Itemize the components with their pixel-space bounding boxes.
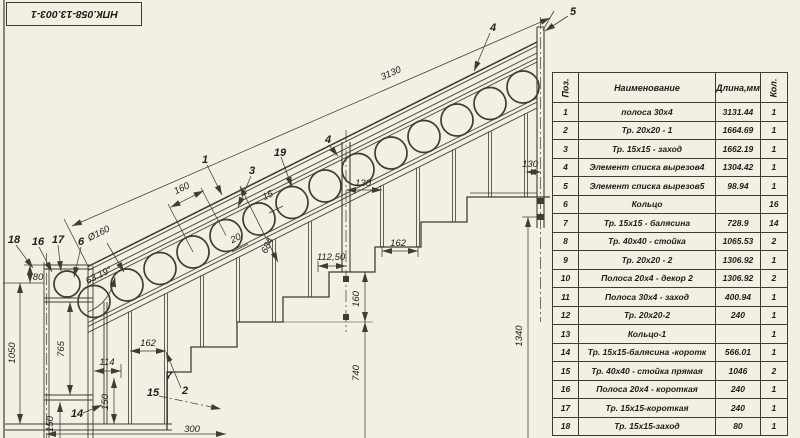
spec-cell-name: Тр. 40х40 - стойка прямая [579, 362, 716, 381]
landing-ring [54, 271, 80, 297]
spec-cell-length: 1306.92 [716, 251, 761, 270]
dim-162-left: 162 [140, 338, 157, 349]
spec-cell-length: 240 [716, 380, 761, 399]
dim-ring-pitch: 160 [172, 180, 192, 197]
callout-14: 14 [71, 408, 83, 420]
spec-row: 12Тр. 20х20-22401 [553, 306, 788, 325]
spec-cell-qty: 2 [760, 362, 787, 381]
spec-cell-qty: 1 [760, 103, 787, 122]
spec-cell-length: 80 [716, 417, 761, 436]
spec-cell-pos: 15 [553, 362, 579, 381]
spec-cell-length: 1664.69 [716, 121, 761, 140]
spec-cell-pos: 12 [553, 306, 579, 325]
spec-cell-pos: 3 [553, 140, 579, 159]
spec-cell-qty: 1 [760, 306, 787, 325]
spec-cell-qty: 1 [760, 177, 787, 196]
balusters [129, 114, 528, 425]
spec-row: 18Тр. 15х15-заход801 [553, 417, 788, 436]
spec-cell-pos: 14 [553, 343, 579, 362]
spec-cell-name: Кольцо [579, 195, 716, 214]
spec-cell-qty: 2 [760, 232, 787, 251]
dim-130-top: 130 [522, 159, 539, 170]
spec-cell-length: 1046 [716, 362, 761, 381]
dim-765: 765 [56, 340, 67, 357]
spec-cell-pos: 16 [553, 380, 579, 399]
spec-cell-name: Элемент списка вырезов5 [579, 177, 716, 196]
dim-740: 740 [351, 364, 362, 381]
spec-cell-pos: 5 [553, 177, 579, 196]
callout-18: 18 [8, 234, 21, 246]
callout-7: 7 [166, 370, 173, 382]
spec-cell-name: Полоса 20х4 - короткая [579, 380, 716, 399]
spec-cell-pos: 13 [553, 325, 579, 344]
dim-slope-length: 3130 [379, 64, 403, 83]
dim-150-b: 150 [45, 415, 56, 432]
spec-cell-length: 1304.42 [716, 158, 761, 177]
dim-130-mid: 130 [355, 178, 372, 189]
spec-cell-pos: 9 [553, 251, 579, 270]
spec-cell-name: Кольцо-1 [579, 325, 716, 344]
spec-cell-name: Тр. 40х40 - стойка [579, 232, 716, 251]
spec-cell-name: Тр. 20х20 - 2 [579, 251, 716, 270]
spec-cell-pos: 11 [553, 288, 579, 307]
spec-cell-pos: 10 [553, 269, 579, 288]
spec-cell-name: Тр. 20х20-2 [579, 306, 716, 325]
spec-cell-name: полоса 30х4 [579, 103, 716, 122]
spec-row: 1полоса 30х43131.441 [553, 103, 788, 122]
spec-row: 17Тр. 15х15-короткая2401 [553, 399, 788, 418]
spec-row: 6Кольцо16 [553, 195, 788, 214]
spec-cell-qty: 14 [760, 214, 787, 233]
spec-cell-name: Тр. 15х15 - заход [579, 140, 716, 159]
dim-1050: 1050 [7, 342, 18, 364]
handrail-strip [88, 42, 537, 267]
dim-114: 114 [99, 357, 114, 368]
spec-row: 8Тр. 40х40 - стойка1065.532 [553, 232, 788, 251]
spec-cell-length: 1306.92 [716, 269, 761, 288]
spec-row: 10Полоса 20х4 - декор 21306.922 [553, 269, 788, 288]
dim-160-vert: 160 [351, 290, 362, 307]
spec-cell-pos: 17 [553, 399, 579, 418]
spec-cell-qty: 1 [760, 380, 787, 399]
spec-row: 5Элемент списка вырезов598.941 [553, 177, 788, 196]
spec-cell-pos: 2 [553, 121, 579, 140]
spec-row: 9Тр. 20х20 - 21306.921 [553, 251, 788, 270]
spec-cell-length: 400.94 [716, 288, 761, 307]
spec-cell-length: 3131.44 [716, 103, 761, 122]
spec-cell-length: 566.01 [716, 343, 761, 362]
spec-cell-qty: 1 [760, 288, 787, 307]
spec-cell-name: Тр. 15х15 - балясина [579, 214, 716, 233]
spec-row: 2Тр. 20х20 - 11664.691 [553, 121, 788, 140]
spec-cell-qty: 1 [760, 399, 787, 418]
spec-cell-pos: 1 [553, 103, 579, 122]
spec-cell-qty: 1 [760, 343, 787, 362]
dim-80: 80 [33, 272, 44, 283]
spec-cell-name: Тр. 15х15-балясина -коротк [579, 343, 716, 362]
railing-slope [88, 42, 537, 333]
dim-angle: 63.19° [84, 265, 114, 287]
spec-cell-pos: 7 [553, 214, 579, 233]
callout-4-top: 4 [489, 22, 496, 34]
spec-cell-pos: 18 [553, 417, 579, 436]
spec-cell-pos: 6 [553, 195, 579, 214]
spec-table: Поз. Наименование Длина,мм Кол. 1полоса … [552, 72, 788, 436]
spec-cell-length: 728.9 [716, 214, 761, 233]
spec-header-length: Длина,мм [716, 73, 761, 103]
spec-row: 14Тр. 15х15-балясина -коротк566.011 [553, 343, 788, 362]
callout-5: 5 [570, 6, 577, 18]
dim-162-right: 162 [390, 238, 407, 249]
dim-112-50: 112,50 [317, 252, 346, 263]
spec-cell-length: 1662.19 [716, 140, 761, 159]
spec-cell-length [716, 195, 761, 214]
callout-1: 1 [202, 154, 208, 166]
callout-4-mid: 4 [324, 134, 331, 146]
spec-cell-length [716, 325, 761, 344]
callout-6: 6 [78, 236, 85, 248]
spec-cell-length: 240 [716, 306, 761, 325]
spec-cell-length: 240 [716, 399, 761, 418]
spec-cell-qty: 1 [760, 251, 787, 270]
spec-cell-qty: 1 [760, 121, 787, 140]
spec-cell-pos: 8 [553, 232, 579, 251]
callout-2: 2 [181, 385, 188, 397]
callout-16: 16 [32, 236, 45, 248]
spec-cell-qty: 1 [760, 140, 787, 159]
spec-row: 4Элемент списка вырезов41304.421 [553, 158, 788, 177]
spec-row: 3Тр. 15х15 - заход1662.191 [553, 140, 788, 159]
dim-ring-diameter: Ø160 [85, 223, 112, 244]
spec-cell-length: 98.94 [716, 177, 761, 196]
spec-cell-qty: 2 [760, 269, 787, 288]
callout-19: 19 [274, 147, 287, 159]
drawing-sheet: { "title_block": { "doc_number": "НПК.05… [0, 0, 800, 438]
dim-150-a: 150 [100, 393, 111, 410]
spec-cell-qty: 1 [760, 158, 787, 177]
spec-cell-qty: 1 [760, 417, 787, 436]
spec-cell-name: Полоса 20х4 - декор 2 [579, 269, 716, 288]
spec-row: 7Тр. 15х15 - балясина728.914 [553, 214, 788, 233]
spec-row: 15Тр. 40х40 - стойка прямая10462 [553, 362, 788, 381]
spec-row: 11Полоса 30х4 - заход400.941 [553, 288, 788, 307]
spec-cell-qty: 1 [760, 325, 787, 344]
spec-row: 16Полоса 20х4 - короткая2401 [553, 380, 788, 399]
spec-cell-name: Элемент списка вырезов4 [579, 158, 716, 177]
spec-row: 13Кольцо-11 [553, 325, 788, 344]
spec-header-name: Наименование [579, 73, 716, 103]
dim-1340: 1340 [514, 325, 525, 347]
spec-header-pos: Поз. [553, 73, 579, 103]
spec-cell-name: Тр. 20х20 - 1 [579, 121, 716, 140]
dim-300: 300 [184, 424, 201, 435]
callout-15: 15 [147, 387, 160, 399]
spec-cell-name: Полоса 30х4 - заход [579, 288, 716, 307]
callout-3: 3 [249, 165, 255, 177]
spec-body: 1полоса 30х43131.4412Тр. 20х20 - 11664.6… [553, 103, 788, 436]
spec-cell-qty: 16 [760, 195, 787, 214]
spec-cell-name: Тр. 15х15-заход [579, 417, 716, 436]
spec-cell-pos: 4 [553, 158, 579, 177]
spec-cell-length: 1065.53 [716, 232, 761, 251]
spec-cell-name: Тр. 15х15-короткая [579, 399, 716, 418]
callout-17: 17 [52, 234, 65, 246]
spec-header-qty: Кол. [760, 73, 787, 103]
